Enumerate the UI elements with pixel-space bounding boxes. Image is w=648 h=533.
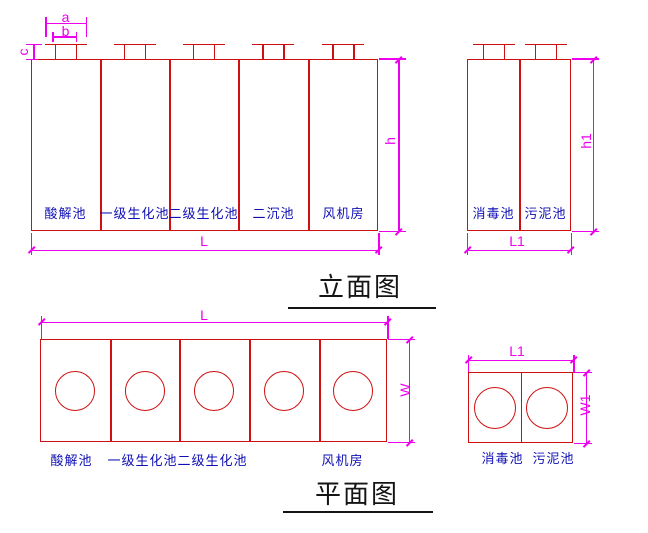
tank-label: 一级生化池 xyxy=(98,206,171,221)
tank-opening-circle xyxy=(526,387,568,429)
tank-divider xyxy=(179,339,181,442)
dim-extension xyxy=(573,355,575,373)
dim-label-L: L xyxy=(189,234,219,248)
nozzle-leg xyxy=(556,44,558,60)
tank-opening-circle xyxy=(194,371,234,411)
dim-line-c xyxy=(33,44,35,60)
dim-label-W: W xyxy=(398,380,412,400)
dim-label-L1: L1 xyxy=(502,344,532,358)
dim-extension xyxy=(467,233,469,255)
cad-drawing-canvas: 酸解池 一级生化池 二级生化池 二沉池 风机房 a b c h L xyxy=(0,0,648,533)
nozzle-leg xyxy=(353,44,355,60)
dim-extension xyxy=(387,316,389,339)
nozzle-cap xyxy=(252,44,294,46)
tank-label: 一级生化池 xyxy=(106,453,179,468)
plan-title: 平面图 xyxy=(307,480,407,508)
tank-opening-circle xyxy=(55,371,95,411)
tank-divider xyxy=(319,339,321,442)
nozzle-leg xyxy=(483,44,485,60)
tank-divider xyxy=(521,372,523,443)
dim-extension xyxy=(574,443,592,445)
dim-extension xyxy=(378,233,380,255)
dim-extension xyxy=(45,17,47,37)
dim-line-L1 xyxy=(468,360,574,362)
dim-extension xyxy=(468,355,470,373)
tank-label: 酸解池 xyxy=(47,453,96,468)
nozzle-leg xyxy=(214,44,216,60)
dim-label-h1: h1 xyxy=(579,129,593,153)
plan-title-underline xyxy=(283,511,433,513)
dim-extension xyxy=(52,32,54,42)
tank-label: 酸解池 xyxy=(41,206,90,221)
tank-opening-circle xyxy=(474,387,516,429)
tank-label: 风机房 xyxy=(319,206,368,221)
dim-extension xyxy=(26,44,42,46)
nozzle-cap xyxy=(45,44,87,46)
tank-label: 风机房 xyxy=(318,453,367,468)
dim-line-L xyxy=(41,322,388,324)
tank-label: 污泥池 xyxy=(529,451,578,466)
dim-label-L1: L1 xyxy=(502,234,532,248)
nozzle-leg xyxy=(283,44,285,60)
nozzle-cap xyxy=(183,44,225,46)
tank-label: 二沉池 xyxy=(249,206,298,221)
dim-extension xyxy=(379,231,406,233)
tank-divider xyxy=(308,59,310,231)
nozzle-cap xyxy=(473,44,515,46)
nozzle-leg xyxy=(332,44,334,60)
nozzle-leg xyxy=(193,44,195,60)
nozzle-leg xyxy=(55,44,57,60)
dim-label-L: L xyxy=(189,308,219,322)
tank-label: 二级生化池 xyxy=(167,206,240,221)
dim-line-h xyxy=(398,59,400,231)
nozzle-leg xyxy=(124,44,126,60)
nozzle-cap xyxy=(114,44,156,46)
nozzle-cap xyxy=(525,44,567,46)
dim-line-b xyxy=(53,36,77,38)
dim-extension xyxy=(379,58,406,60)
dim-extension xyxy=(26,59,38,61)
elevation-title: 立面图 xyxy=(310,273,410,301)
nozzle-leg xyxy=(76,44,78,60)
tank-label: 二级生化池 xyxy=(176,453,249,468)
tank-opening-circle xyxy=(125,371,165,411)
nozzle-leg xyxy=(535,44,537,60)
tank-opening-circle xyxy=(333,371,373,411)
dim-label-W1: W1 xyxy=(578,392,592,418)
dim-label-h: h xyxy=(383,132,397,150)
dim-extension xyxy=(86,17,88,37)
dim-extension xyxy=(76,32,78,42)
dim-extension xyxy=(31,233,33,255)
dim-extension xyxy=(574,372,592,374)
dim-extension xyxy=(41,316,43,339)
tank-label: 污泥池 xyxy=(521,206,570,221)
nozzle-leg xyxy=(504,44,506,60)
tank-opening-circle xyxy=(264,371,304,411)
elevation-title-underline xyxy=(288,307,436,309)
tank-divider xyxy=(249,339,251,442)
nozzle-cap xyxy=(322,44,364,46)
dim-extension xyxy=(571,233,573,255)
tank-label: 消毒池 xyxy=(469,206,518,221)
dim-line-L xyxy=(31,250,379,252)
tank-label: 消毒池 xyxy=(478,451,527,466)
nozzle-leg xyxy=(262,44,264,60)
tank-divider xyxy=(110,339,112,442)
dim-line-L1 xyxy=(467,250,572,252)
nozzle-leg xyxy=(145,44,147,60)
